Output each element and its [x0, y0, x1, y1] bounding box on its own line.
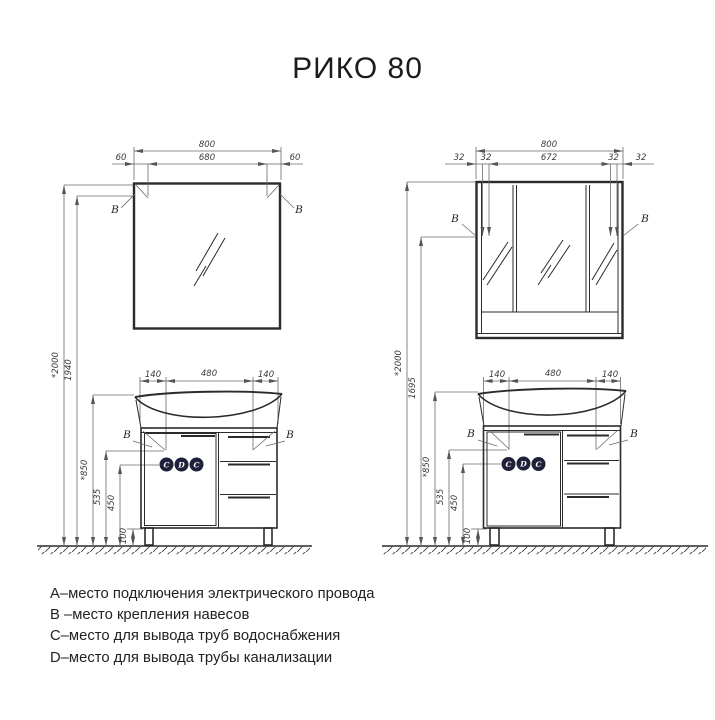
mount-label-mirror-right: B: [294, 204, 303, 216]
port-label-c2: C: [194, 461, 200, 470]
mount-label-vanity-left: B: [466, 428, 475, 440]
cabinet-door: [145, 434, 217, 526]
right-vertical-dimensions: *2000 1695 *850 535 450 100: [394, 182, 507, 546]
port-label-d: D: [519, 460, 527, 469]
dim-left-h2: *850: [80, 460, 90, 480]
mount-label-mirror-right: B: [640, 213, 649, 225]
left-vertical-dimensions: *2000 1940 *850 535 450 100: [51, 185, 164, 546]
dim-right-seg-1: 32: [481, 153, 492, 163]
technical-drawing-page: РИКО 80 800: [0, 0, 715, 720]
legend-item-a: А–место подключения электрического прово…: [50, 584, 375, 605]
legend: А–место подключения электрического прово…: [50, 584, 375, 669]
dim-right-total-width: 800: [541, 140, 557, 150]
dim-left-h0: *2000: [51, 352, 61, 378]
dim-right-h2: *850: [422, 457, 432, 477]
dim-left-h5: 100: [119, 528, 129, 544]
dim-right-h1: 1695: [408, 377, 418, 399]
port-label-c2: C: [536, 460, 542, 469]
cabinet-leg: [605, 528, 614, 545]
dim-right-seg-3: 32: [608, 153, 619, 163]
left-washbasin: [135, 392, 282, 428]
drawer-stack: [220, 437, 276, 498]
dim-left-vw2: 140: [258, 370, 274, 380]
port-label-c1: C: [506, 460, 512, 469]
mirror-glass-hatch-icon: [194, 233, 225, 286]
legend-item-c: С–место для вывода труб водоснабжения: [50, 626, 375, 647]
left-view: 800 60 680 60 B B *2000: [37, 140, 312, 554]
mount-label-vanity-right: B: [285, 429, 294, 441]
dim-right-h3: 535: [436, 489, 446, 505]
legend-item-d: D–место для вывода трубы канализации: [50, 648, 375, 669]
right-washbasin: [478, 389, 626, 426]
dim-right-vw2: 140: [602, 370, 618, 380]
dim-right-h5: 100: [463, 528, 473, 544]
right-view: 800 32 32 672 32 32 B B *2000: [382, 140, 708, 554]
mount-label-vanity-left: B: [122, 429, 131, 441]
dim-left-h4: 450: [107, 495, 117, 511]
left-vanity-cabinet: [141, 428, 277, 545]
dim-left-vw0: 140: [145, 370, 161, 380]
mount-label-mirror-left: B: [450, 213, 459, 225]
cabinet-leg: [145, 528, 153, 545]
mirror-glass-hatch-icon: [592, 243, 617, 285]
mirror-glass-hatch-icon: [538, 240, 570, 285]
cabinet-door: [487, 432, 561, 526]
dim-right-h4: 450: [450, 495, 460, 511]
left-port-badges: C D C: [160, 458, 204, 472]
left-ground: [37, 546, 312, 554]
dim-left-total-width: 800: [199, 140, 215, 150]
cabinet-leg: [264, 528, 272, 545]
dim-left-seg-2: 60: [290, 153, 301, 163]
right-mirror-mount-marks: B B: [450, 213, 649, 236]
dim-left-seg-0: 60: [116, 153, 127, 163]
port-label-d: D: [177, 461, 185, 470]
dim-right-h0: *2000: [394, 350, 404, 376]
mount-label-mirror-left: B: [110, 204, 119, 216]
right-port-badges: C D C: [502, 457, 546, 472]
dim-right-seg-4: 32: [636, 153, 647, 163]
right-ground: [382, 546, 708, 554]
legend-item-b: В –место крепления навесов: [50, 605, 375, 626]
dim-left-h1: 1940: [64, 359, 74, 381]
cabinet-leg: [490, 528, 499, 545]
dim-right-seg-2: 672: [541, 153, 557, 163]
dim-left-seg-1: 680: [199, 153, 215, 163]
dim-right-vw0: 140: [489, 370, 505, 380]
mirror-glass-hatch-icon: [483, 242, 512, 285]
dim-left-h3: 535: [93, 489, 103, 505]
dim-left-vw1: 480: [201, 369, 217, 379]
right-mirror-cabinet: [477, 182, 623, 338]
mount-label-vanity-right: B: [629, 428, 638, 440]
left-mirror-mount-marks: B B: [110, 185, 303, 216]
dim-right-seg-0: 32: [454, 153, 465, 163]
right-vanity-mount-marks: B B: [466, 428, 638, 449]
dim-right-vw1: 480: [545, 369, 561, 379]
left-top-dimensions: 800 60 680 60: [112, 140, 303, 196]
left-mirror: [134, 184, 280, 329]
port-label-c1: C: [164, 461, 170, 470]
